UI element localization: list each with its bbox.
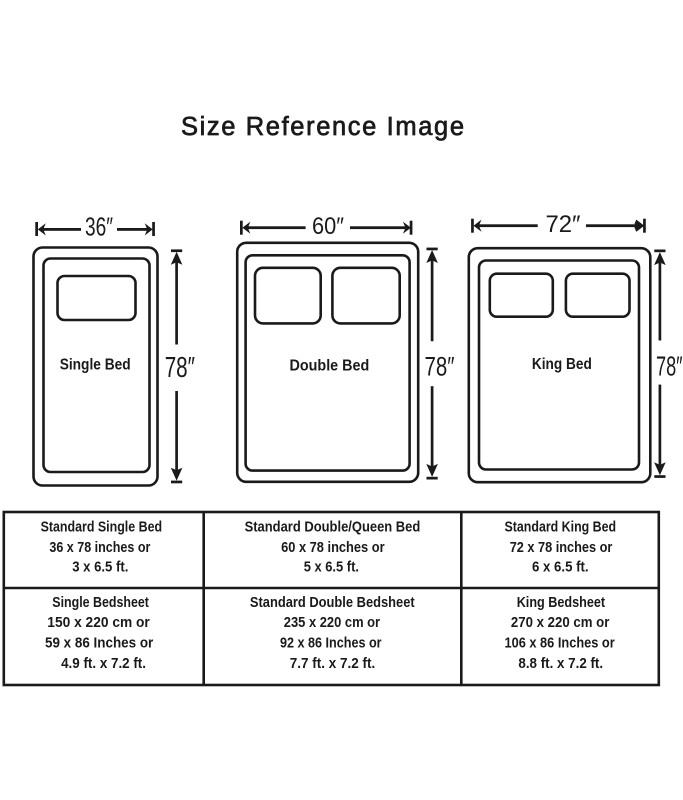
svg-text:36″: 36″ <box>85 214 113 242</box>
svg-text:Standard Single Bed: Standard Single Bed <box>41 520 163 536</box>
svg-text:78″: 78″ <box>425 351 455 381</box>
svg-text:59 x 86 Inches or: 59 x 86 Inches or <box>45 636 154 652</box>
svg-text:Standard King Bed: Standard King Bed <box>505 520 617 536</box>
svg-text:Size Reference Image: Size Reference Image <box>181 113 464 141</box>
svg-text:5 x 6.5 ft.: 5 x 6.5 ft. <box>304 560 359 576</box>
svg-text:60 x 78 inches or: 60 x 78 inches or <box>281 540 385 556</box>
svg-text:Standard Double/Queen Bed: Standard Double/Queen Bed <box>245 520 421 536</box>
svg-text:106 x 86 Inches or: 106 x 86 Inches or <box>505 636 615 652</box>
svg-text:6 x 6.5 ft.: 6 x 6.5 ft. <box>532 560 589 576</box>
svg-text:7.7 ft. x 7.2 ft.: 7.7 ft. x 7.2 ft. <box>290 656 375 672</box>
svg-text:270 x 220 cm or: 270 x 220 cm or <box>511 615 610 631</box>
svg-text:Double Bed: Double Bed <box>290 358 370 375</box>
svg-text:78″: 78″ <box>165 352 195 384</box>
svg-text:150 x 220 cm or: 150 x 220 cm or <box>47 615 150 631</box>
svg-text:3 x 6.5 ft.: 3 x 6.5 ft. <box>72 560 128 576</box>
svg-text:King Bedsheet: King Bedsheet <box>517 595 606 611</box>
svg-text:235 x 220 cm or: 235 x 220 cm or <box>284 615 381 631</box>
svg-text:King Bed: King Bed <box>532 356 592 373</box>
svg-text:60″: 60″ <box>312 213 344 240</box>
svg-text:Single Bed: Single Bed <box>60 357 131 374</box>
svg-text:72 x 78 inches or: 72 x 78 inches or <box>510 540 613 556</box>
svg-text:36 x 78 inches or: 36 x 78 inches or <box>49 540 150 556</box>
svg-text:92 x 86 Inches or: 92 x 86 Inches or <box>280 636 382 652</box>
svg-text:8.8 ft. x 7.2 ft.: 8.8 ft. x 7.2 ft. <box>518 656 603 672</box>
svg-text:72″: 72″ <box>546 211 581 238</box>
svg-text:Standard Double Bedsheet: Standard Double Bedsheet <box>250 595 415 611</box>
svg-text:78″: 78″ <box>656 350 683 382</box>
svg-text:4.9 ft. x 7.2 ft.: 4.9 ft. x 7.2 ft. <box>61 656 146 672</box>
svg-text:Single Bedsheet: Single Bedsheet <box>52 595 149 611</box>
